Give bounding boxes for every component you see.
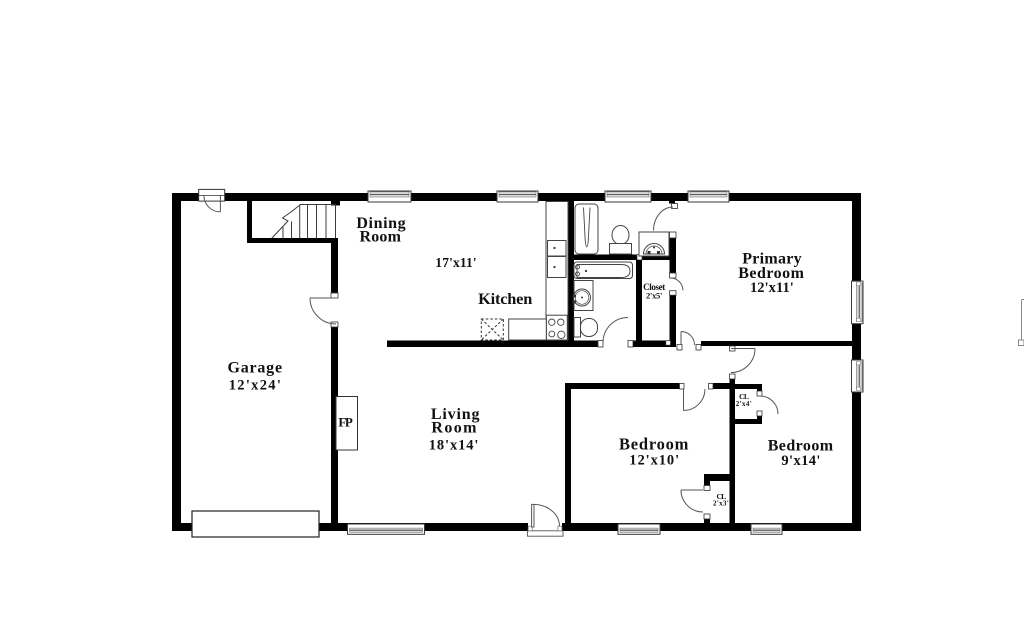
svg-text:Kitchen: Kitchen [478, 289, 532, 308]
svg-text:2'x5': 2'x5' [646, 291, 662, 301]
svg-text:18'x14': 18'x14' [429, 437, 479, 453]
svg-text:2'x4': 2'x4' [736, 400, 752, 408]
svg-text:17'x11': 17'x11' [435, 255, 476, 270]
svg-text:Garage: Garage [228, 360, 282, 377]
svg-text:Bedroom: Bedroom [619, 435, 689, 454]
svg-text:12'x10': 12'x10' [629, 453, 679, 469]
svg-text:Room: Room [431, 419, 477, 436]
svg-text:2'x3': 2'x3' [713, 500, 729, 508]
svg-text:Bedroom: Bedroom [768, 438, 834, 455]
svg-text:Room: Room [360, 229, 402, 246]
svg-text:FP: FP [338, 415, 353, 430]
svg-text:12'x11': 12'x11' [750, 280, 794, 296]
svg-text:9'x14': 9'x14' [781, 453, 820, 469]
svg-text:12'x24': 12'x24' [229, 378, 281, 394]
